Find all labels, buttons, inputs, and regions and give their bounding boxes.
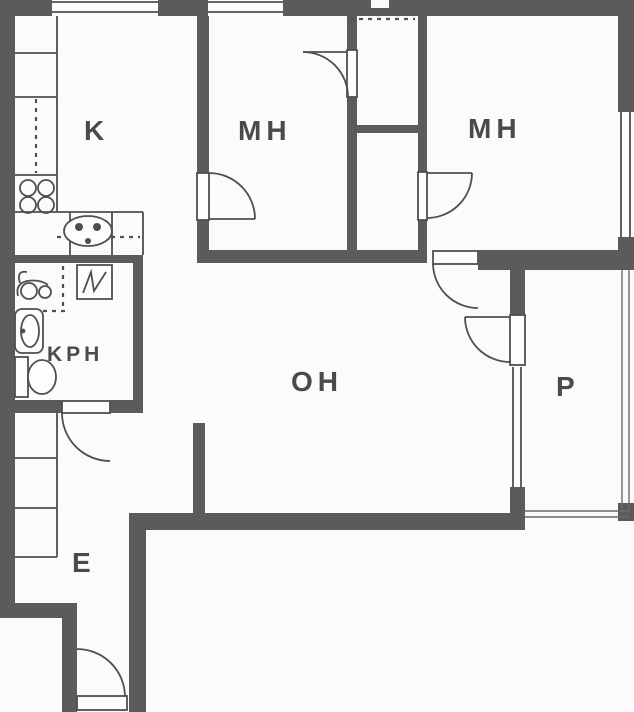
room-label-kitchen: K xyxy=(84,115,109,146)
kitchen-sink-icon xyxy=(57,212,143,255)
kitchen-window xyxy=(52,0,158,14)
bedroom-2-window xyxy=(618,112,634,237)
room-labels: K MH MH OH KPH E P xyxy=(47,113,580,578)
door-balcony xyxy=(465,315,525,365)
water-heater-icon xyxy=(77,265,112,299)
room-label-bedroom-1: MH xyxy=(238,115,292,146)
entrance-closets xyxy=(15,413,57,557)
door-entrance xyxy=(77,649,127,710)
door-bathroom xyxy=(62,401,110,461)
wall-notch xyxy=(371,0,389,8)
washbasin-icon xyxy=(15,309,43,353)
wardrobe-door-bedroom-1 xyxy=(303,50,357,97)
balcony-window xyxy=(510,367,525,487)
room-label-bathroom: KPH xyxy=(47,343,103,366)
wardrobe-bedroom-1 xyxy=(357,16,418,125)
bedroom-1-window xyxy=(208,0,283,14)
floor-plan: K MH MH OH KPH E P xyxy=(0,0,634,712)
room-label-entrance: E xyxy=(72,547,96,578)
stove-icon xyxy=(15,180,57,213)
door-bedroom-2 xyxy=(433,251,478,308)
wardrobe-bedroom-2 xyxy=(357,133,418,250)
room-label-bedroom-2: MH xyxy=(468,113,522,144)
room-label-balcony: P xyxy=(556,371,580,402)
floor-plan-drawing: K MH MH OH KPH E P xyxy=(0,0,634,712)
washing-machine-icon xyxy=(17,272,51,299)
wardrobe-door-bedroom-2 xyxy=(418,172,472,220)
room-label-living-room: OH xyxy=(291,366,343,397)
door-bedroom-1 xyxy=(197,173,255,220)
